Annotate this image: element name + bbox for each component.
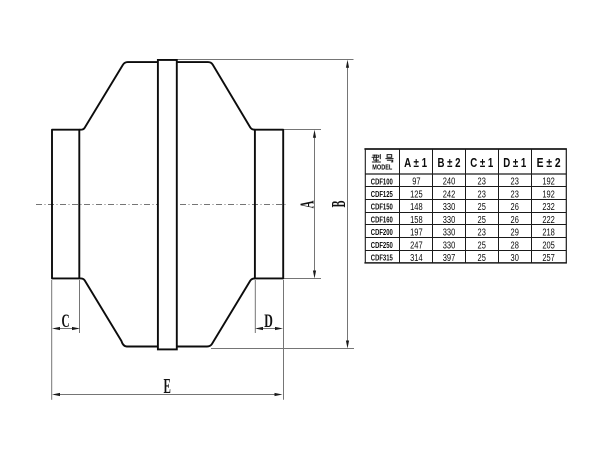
svg-text:B ± 2: B ± 2 [438,155,461,170]
svg-text:397: 397 [443,253,456,264]
svg-text:30: 30 [511,253,520,264]
svg-text:23: 23 [478,177,487,188]
svg-text:23: 23 [511,189,520,200]
svg-text:247: 247 [410,240,423,251]
svg-text:CDF315: CDF315 [371,254,393,263]
svg-text:314: 314 [410,253,423,264]
svg-text:26: 26 [511,215,520,226]
svg-text:E ± 2: E ± 2 [537,155,561,170]
svg-text:29: 29 [511,228,519,239]
svg-text:232: 232 [542,202,555,213]
svg-text:242: 242 [443,189,456,200]
svg-text:158: 158 [410,215,423,226]
svg-text:148: 148 [410,202,423,213]
svg-text:330: 330 [443,202,456,213]
svg-text:CDF160: CDF160 [371,215,393,224]
svg-text:25: 25 [478,240,487,251]
svg-text:205: 205 [542,240,555,251]
svg-text:218: 218 [542,228,555,239]
svg-text:D ± 1: D ± 1 [503,155,526,170]
svg-text:MODEL: MODEL [372,164,393,171]
svg-text:CDF100: CDF100 [371,177,393,186]
svg-text:25: 25 [478,253,487,264]
svg-text:CDF150: CDF150 [371,203,393,212]
svg-text:330: 330 [443,228,456,239]
svg-text:B: B [328,201,350,208]
svg-text:C ± 1: C ± 1 [470,155,493,170]
svg-text:CDF200: CDF200 [371,228,393,237]
svg-text:23: 23 [511,177,520,188]
svg-text:D: D [264,311,273,332]
svg-text:330: 330 [443,240,456,251]
svg-text:26: 26 [511,202,520,213]
svg-text:A ± 1: A ± 1 [404,155,427,170]
svg-text:97: 97 [412,177,420,188]
svg-text:222: 222 [542,215,555,226]
svg-text:25: 25 [478,215,487,226]
svg-text:E: E [164,374,171,398]
svg-text:CDF250: CDF250 [371,241,393,250]
svg-text:197: 197 [410,228,423,239]
svg-text:240: 240 [443,177,456,188]
svg-text:257: 257 [542,253,555,264]
svg-text:192: 192 [542,189,555,200]
svg-text:125: 125 [410,189,423,200]
svg-text:192: 192 [542,177,555,188]
svg-text:CDF125: CDF125 [371,190,393,199]
svg-text:28: 28 [511,240,520,251]
svg-text:A: A [297,200,319,208]
svg-text:25: 25 [478,202,487,213]
svg-text:C: C [62,311,70,332]
svg-text:23: 23 [478,189,487,200]
svg-text:23: 23 [478,228,487,239]
svg-text:330: 330 [443,215,456,226]
